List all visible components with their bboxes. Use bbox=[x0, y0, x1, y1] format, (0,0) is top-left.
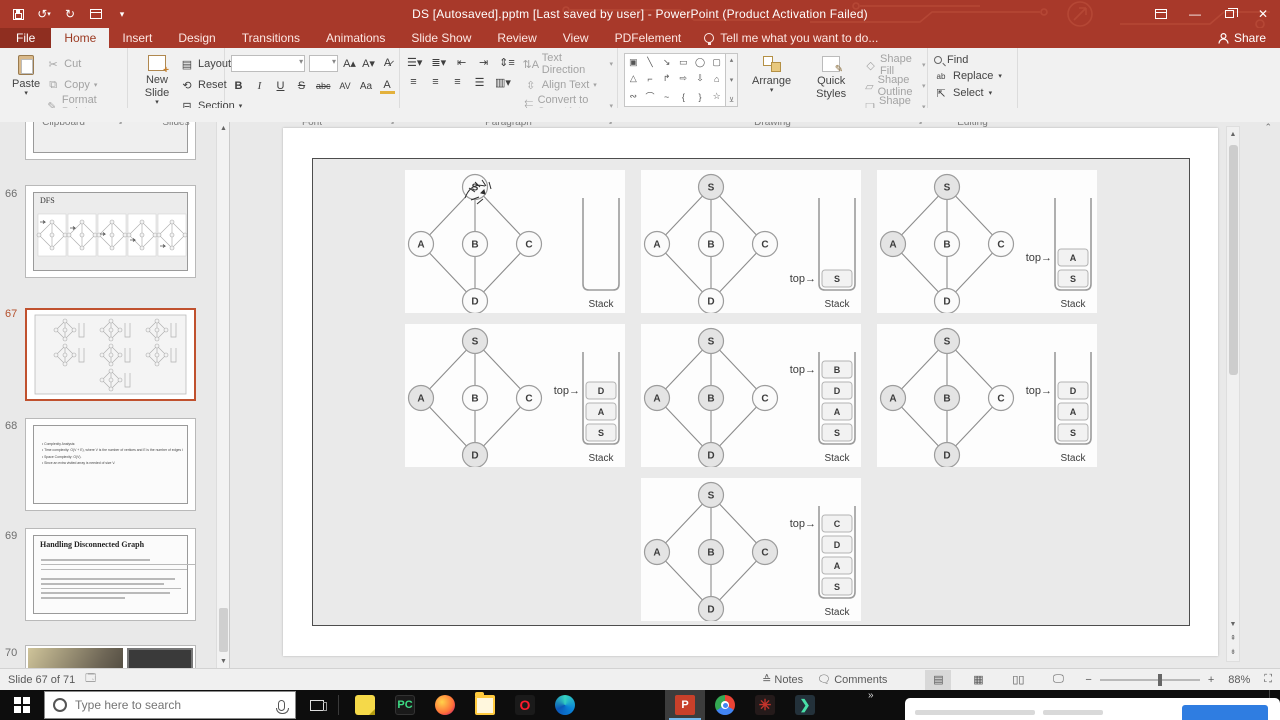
copy-label: Copy bbox=[64, 79, 90, 91]
slide-number: 70 bbox=[5, 647, 23, 659]
diagram-row: SABCDStackSABCDStop→StackSABCDAStop→Stac… bbox=[405, 170, 1097, 313]
columns-button[interactable]: ▥▾ bbox=[494, 74, 512, 90]
tab-pdfelement[interactable]: PDFelement bbox=[602, 28, 695, 48]
tab-insert[interactable]: Insert bbox=[109, 28, 165, 48]
svg-text:S: S bbox=[944, 337, 951, 348]
minimize-button[interactable]: — bbox=[1178, 0, 1212, 28]
restore-button[interactable] bbox=[1212, 0, 1246, 28]
svg-text:B: B bbox=[707, 394, 714, 405]
taskbar-app-powerpoint[interactable]: P bbox=[665, 690, 705, 720]
paste-button[interactable]: Paste ▾ bbox=[6, 52, 46, 116]
tab-view[interactable]: View bbox=[550, 28, 602, 48]
arrange-icon bbox=[763, 56, 781, 72]
select-button[interactable]: ⇱Select▾ bbox=[934, 86, 1013, 100]
svg-text:Stack: Stack bbox=[1060, 453, 1086, 464]
svg-text:S: S bbox=[598, 428, 604, 438]
tab-file[interactable]: File bbox=[0, 28, 51, 48]
svg-text:D: D bbox=[707, 451, 714, 462]
svg-text:top→: top→ bbox=[554, 385, 580, 397]
quick-styles-icon bbox=[822, 56, 840, 72]
svg-text:C: C bbox=[761, 548, 768, 559]
slide-number: 67 bbox=[5, 308, 23, 320]
taskbar-app-filmora[interactable]: ❯ bbox=[785, 690, 825, 720]
svg-text:S: S bbox=[1070, 428, 1076, 438]
svg-text:D: D bbox=[471, 451, 478, 462]
align-right-button[interactable]: ≡ bbox=[450, 74, 465, 90]
thumbnail-photo bbox=[28, 648, 123, 668]
decrease-indent-button[interactable]: ⇤ bbox=[454, 54, 469, 70]
zoom-in-button[interactable]: + bbox=[1208, 674, 1214, 686]
notification-popup[interactable] bbox=[905, 698, 1280, 720]
svg-text:A: A bbox=[653, 394, 660, 405]
slide-thumbnail-66[interactable]: DFS bbox=[25, 185, 196, 278]
font-size-combobox[interactable] bbox=[309, 55, 338, 72]
reading-view-button[interactable]: ▯▯ bbox=[1005, 670, 1031, 690]
svg-text:B: B bbox=[707, 548, 714, 559]
reset-label: Reset bbox=[198, 79, 227, 91]
copy-button[interactable]: ⧉Copy ▾ bbox=[46, 75, 123, 95]
dfs-step-card[interactable]: SABCDStack bbox=[405, 170, 625, 313]
svg-text:D: D bbox=[707, 297, 714, 308]
shape-glyph[interactable]: ◯ bbox=[695, 57, 705, 68]
tell-me-label: Tell me what you want to do... bbox=[720, 31, 878, 45]
svg-text:B: B bbox=[707, 240, 714, 251]
sidebar-scrollbar-thumb[interactable] bbox=[219, 608, 228, 652]
font-name-combobox[interactable] bbox=[231, 55, 305, 72]
editor-scroll-down-arrow[interactable]: ▼ bbox=[1227, 617, 1239, 631]
popup-text-placeholder bbox=[1043, 710, 1103, 715]
ribbon-tabs: FileHomeInsertDesignTransitionsAnimation… bbox=[0, 28, 694, 48]
taskbar-separator bbox=[338, 695, 339, 715]
editor-scrollbar-thumb[interactable] bbox=[1229, 145, 1238, 375]
next-slide-button[interactable]: ⇟ bbox=[1227, 645, 1239, 659]
task-view-icon bbox=[310, 700, 324, 711]
increase-indent-button[interactable]: ⇥ bbox=[476, 54, 491, 70]
shape-glyph[interactable]: ⇨ bbox=[680, 73, 688, 84]
svg-text:S: S bbox=[472, 337, 479, 348]
select-label: Select bbox=[953, 87, 984, 99]
cut-label: Cut bbox=[64, 58, 81, 70]
fit-to-window-button[interactable]: ⛶ bbox=[1264, 673, 1272, 686]
lightbulb-icon bbox=[704, 33, 714, 43]
svg-text:C: C bbox=[997, 240, 1004, 251]
shape-glyph[interactable]: ▢ bbox=[712, 57, 721, 68]
drawing-group: ▣╲↘▭◯▢△⌐↱⇨⇩⌂∾⌒~{}☆ ▴▾⊻ Arrange ▾ Quick S… bbox=[618, 48, 928, 114]
shape-glyph[interactable]: ↱ bbox=[663, 73, 671, 84]
svg-text:A: A bbox=[417, 394, 424, 405]
replace-label: Replace bbox=[953, 70, 993, 82]
tab-design[interactable]: Design bbox=[165, 28, 228, 48]
svg-text:D: D bbox=[471, 297, 478, 308]
slide-number: 69 bbox=[5, 530, 23, 542]
slides-group: New Slide ▾ ▤Layout▾ ⟲Reset ⊟Section▾ Sl… bbox=[128, 48, 225, 114]
firefox-icon bbox=[435, 695, 455, 715]
shape-glyph[interactable]: } bbox=[698, 92, 701, 102]
quick-styles-button[interactable]: Quick Styles bbox=[805, 53, 857, 103]
svg-text:Stack: Stack bbox=[824, 607, 850, 618]
slide-number-indicator[interactable]: Slide 67 of 71 bbox=[8, 674, 75, 686]
taskbar-app-pycharm[interactable]: PC bbox=[385, 690, 425, 720]
chrome-icon bbox=[715, 695, 735, 715]
numbering-button[interactable]: ≣▾ bbox=[430, 54, 447, 70]
svg-text:A: A bbox=[653, 240, 660, 251]
taskbar-app-firefox[interactable] bbox=[425, 690, 465, 720]
shape-glyph[interactable]: ~ bbox=[664, 92, 669, 102]
svg-text:B: B bbox=[834, 365, 841, 375]
desktop-toolbar-chevron[interactable]: » bbox=[868, 690, 874, 701]
svg-text:B: B bbox=[943, 240, 950, 251]
bullets-button[interactable]: ☰▾ bbox=[406, 54, 423, 70]
clipboard-group: Paste ▾ ✂Cut ⧉Copy ▾ ✎Format Painter Cli… bbox=[0, 48, 128, 114]
person-icon bbox=[1218, 33, 1229, 44]
powerpoint-window: ↺▾ ↻ ▾ DS [Autosaved].pptm [Last saved b… bbox=[0, 0, 1280, 720]
tab-transitions[interactable]: Transitions bbox=[229, 28, 313, 48]
collapse-ribbon-chevron[interactable]: ⌃ bbox=[1264, 122, 1272, 133]
svg-text:A: A bbox=[889, 394, 896, 405]
shape-fill-icon: ◇ bbox=[865, 58, 876, 72]
svg-text:D: D bbox=[943, 297, 950, 308]
slide-thumbnail-70[interactable] bbox=[25, 645, 196, 668]
tell-me-box[interactable]: Tell me what you want to do... bbox=[694, 28, 888, 48]
layout-icon: ▤ bbox=[180, 57, 194, 71]
main-area: ▲ ▼ 66DFS6768• Complexity Analysis:• Tim… bbox=[0, 122, 1280, 668]
shape-glyph[interactable]: ⇩ bbox=[696, 73, 704, 84]
shape-glyph[interactable]: { bbox=[682, 92, 685, 102]
strikethrough-button[interactable]: S bbox=[294, 78, 309, 94]
shape-glyph[interactable]: ▭ bbox=[679, 57, 688, 68]
tab-animations[interactable]: Animations bbox=[313, 28, 398, 48]
slide-number: 68 bbox=[5, 420, 23, 432]
zoom-knob[interactable] bbox=[1158, 674, 1162, 686]
svg-text:D: D bbox=[598, 386, 605, 396]
svg-text:D: D bbox=[834, 386, 841, 396]
shape-glyph[interactable]: ▣ bbox=[629, 57, 638, 68]
shapes-gallery[interactable]: ▣╲↘▭◯▢△⌐↱⇨⇩⌂∾⌒~{}☆ bbox=[624, 53, 726, 107]
close-button[interactable]: ✕ bbox=[1246, 0, 1280, 28]
svg-text:A: A bbox=[834, 561, 841, 571]
slide-thumbnail-69[interactable]: Handling Disconnected Graph bbox=[25, 528, 196, 621]
taskbar-app-red-star-app[interactable]: ✳ bbox=[745, 690, 785, 720]
font-group: A▴ A▾ A̷ B I U S abc AV Aa A Font ↘ bbox=[225, 48, 400, 114]
windows-logo-icon bbox=[14, 697, 29, 712]
find-label: Find bbox=[947, 54, 968, 66]
tab-review[interactable]: Review bbox=[484, 28, 549, 48]
window-controls: — ✕ bbox=[1144, 0, 1280, 28]
quick-styles-label: Quick Styles bbox=[811, 75, 851, 100]
svg-text:C: C bbox=[525, 394, 532, 405]
taskbar-app-edge[interactable] bbox=[545, 690, 585, 720]
shape-glyph[interactable]: ∾ bbox=[630, 91, 638, 102]
change-case-button[interactable]: Aa bbox=[359, 78, 374, 94]
dfs-step-card[interactable]: SABCDDAStop→Stack bbox=[405, 324, 625, 467]
italic-button[interactable]: I bbox=[252, 78, 267, 94]
slideshow-view-button[interactable]: 🖵 bbox=[1045, 670, 1071, 690]
copy-icon: ⧉ bbox=[46, 78, 60, 92]
character-spacing-button[interactable]: AV bbox=[338, 78, 353, 94]
dfs-diagram-grid: SABCDStackSABCDStop→StackSABCDAStop→Stac… bbox=[313, 159, 1189, 625]
svg-text:top→: top→ bbox=[1026, 252, 1052, 264]
start-button[interactable] bbox=[0, 690, 44, 720]
svg-text:top→: top→ bbox=[1026, 385, 1052, 397]
svg-text:top→: top→ bbox=[790, 518, 816, 530]
text-direction-icon: ⇅A bbox=[524, 57, 538, 71]
dfs-step-card[interactable]: SABCDStop→Stack bbox=[641, 170, 861, 313]
diagram-row: SABCDCDAStop→Stack bbox=[641, 478, 861, 621]
popup-action-button[interactable] bbox=[1182, 705, 1268, 720]
cortana-icon bbox=[53, 698, 67, 712]
task-view-button[interactable] bbox=[302, 690, 332, 720]
svg-text:A: A bbox=[834, 407, 841, 417]
shape-outline-icon: ▱ bbox=[865, 79, 873, 93]
slide-number: 66 bbox=[5, 188, 23, 200]
popup-text-placeholder bbox=[915, 710, 1035, 715]
ribbon-display-options-button[interactable] bbox=[1144, 0, 1178, 28]
taskbar-search[interactable] bbox=[44, 691, 296, 719]
svg-text:C: C bbox=[761, 394, 768, 405]
shrink-font-button[interactable]: A▾ bbox=[361, 55, 376, 71]
zoom-slider[interactable]: − + bbox=[1085, 674, 1214, 686]
sticky-notes-icon bbox=[355, 695, 375, 715]
dfs-step-card[interactable]: SABCDAStop→Stack bbox=[877, 170, 1097, 313]
notes-toggle[interactable]: ≙ Notes bbox=[762, 673, 803, 686]
save-icon[interactable] bbox=[10, 6, 26, 22]
comments-toggle[interactable]: 🗨 Comments bbox=[817, 673, 887, 686]
svg-text:B: B bbox=[471, 394, 478, 405]
svg-text:S: S bbox=[708, 491, 715, 502]
powerpoint-icon: P bbox=[675, 695, 695, 715]
align-center-button[interactable]: ≡ bbox=[428, 74, 443, 90]
notes-label: Notes bbox=[774, 674, 803, 686]
ribbon-tab-row: FileHomeInsertDesignTransitionsAnimation… bbox=[0, 28, 1280, 48]
clear-formatting-button[interactable]: A̷ bbox=[380, 55, 395, 71]
pycharm-icon: PC bbox=[395, 695, 415, 715]
svg-text:S: S bbox=[834, 274, 840, 284]
svg-text:D: D bbox=[943, 451, 950, 462]
svg-text:Stack: Stack bbox=[824, 299, 850, 310]
svg-text:C: C bbox=[525, 240, 532, 251]
shape-glyph[interactable]: ↘ bbox=[663, 57, 671, 68]
paste-icon bbox=[18, 55, 34, 75]
grow-font-button[interactable]: A▴ bbox=[342, 55, 357, 71]
redo-icon[interactable]: ↻ bbox=[62, 6, 78, 22]
replace-icon: ab bbox=[934, 69, 948, 83]
taskbar-app-chrome[interactable] bbox=[705, 690, 745, 720]
thumbnail-dark-box bbox=[127, 648, 193, 668]
svg-text:C: C bbox=[834, 519, 841, 529]
editor-scroll-up-arrow[interactable]: ▲ bbox=[1227, 127, 1239, 141]
edge-icon bbox=[555, 695, 575, 715]
taskbar-app-sticky-notes[interactable] bbox=[345, 690, 385, 720]
svg-text:Stack: Stack bbox=[588, 453, 614, 464]
new-slide-button[interactable]: New Slide ▾ bbox=[134, 52, 180, 116]
file-explorer-icon bbox=[475, 695, 495, 715]
new-slide-label: New Slide bbox=[140, 74, 174, 99]
status-bar: Slide 67 of 71 🗔 ≙ Notes 🗨 Comments ▤ ▦ … bbox=[0, 668, 1280, 690]
shape-fill-button[interactable]: ◇Shape Fill▾ bbox=[865, 55, 925, 75]
align-text-label: Align Text bbox=[542, 79, 590, 91]
scroll-down-arrow[interactable]: ▼ bbox=[217, 655, 230, 668]
svg-text:top→: top→ bbox=[790, 273, 816, 285]
customize-quick-access-icon[interactable]: ▾ bbox=[114, 6, 130, 22]
title-bar: ↺▾ ↻ ▾ DS [Autosaved].pptm [Last saved b… bbox=[0, 0, 1280, 28]
arrange-button[interactable]: Arrange ▾ bbox=[746, 53, 797, 97]
shape-glyph[interactable]: ☆ bbox=[713, 91, 721, 102]
svg-text:S: S bbox=[834, 582, 840, 592]
tab-home[interactable]: Home bbox=[51, 28, 109, 48]
svg-text:A: A bbox=[1070, 407, 1077, 417]
slideshow-icon[interactable] bbox=[88, 6, 104, 22]
search-icon bbox=[934, 56, 942, 64]
shape-glyph[interactable]: △ bbox=[630, 73, 637, 84]
svg-text:D: D bbox=[834, 540, 841, 550]
sidebar-scrollbar[interactable]: ▲ ▼ bbox=[216, 122, 229, 668]
shadow-button[interactable]: abc bbox=[315, 78, 332, 94]
svg-text:C: C bbox=[761, 240, 768, 251]
taskbar-app-opera[interactable]: O bbox=[505, 690, 545, 720]
microphone-icon[interactable] bbox=[278, 700, 285, 711]
svg-text:top→: top→ bbox=[790, 364, 816, 376]
text-direction-button[interactable]: ⇅AText Direction▾ bbox=[524, 54, 613, 74]
slide-thumbnail-68[interactable]: • Complexity Analysis:• Time complexity:… bbox=[25, 418, 196, 511]
editor-scrollbar[interactable]: ▲ ▼ ⇞ ⇟ bbox=[1226, 126, 1240, 662]
svg-text:B: B bbox=[471, 240, 478, 251]
reset-icon: ⟲ bbox=[180, 78, 194, 92]
align-left-button[interactable]: ≡ bbox=[406, 74, 421, 90]
svg-text:D: D bbox=[1070, 386, 1077, 396]
svg-text:A: A bbox=[889, 240, 896, 251]
slide-sorter-view-button[interactable]: ▦ bbox=[965, 670, 991, 690]
line-spacing-button[interactable]: ⇕≡ bbox=[498, 54, 516, 70]
cut-icon: ✂ bbox=[46, 57, 60, 71]
quick-access-toolbar: ↺▾ ↻ ▾ bbox=[10, 0, 130, 28]
shape-outline-button[interactable]: ▱Shape Outline▾ bbox=[865, 76, 925, 96]
shape-glyph[interactable]: ⌂ bbox=[714, 74, 719, 84]
svg-text:S: S bbox=[834, 428, 840, 438]
svg-text:S: S bbox=[1070, 274, 1076, 284]
tab-slide-show[interactable]: Slide Show bbox=[398, 28, 484, 48]
font-color-button[interactable]: A bbox=[380, 78, 395, 94]
find-button[interactable]: Find bbox=[934, 54, 1013, 66]
slide-editor-area: SABCDStackSABCDStop→StackSABCDAStop→Stac… bbox=[230, 122, 1280, 668]
svg-text:A: A bbox=[598, 407, 605, 417]
search-input[interactable] bbox=[75, 698, 270, 712]
text-direction-label: Text Direction bbox=[542, 52, 606, 76]
diagram-row: SABCDDAStop→StackSABCDBDAStop→StackSABCD… bbox=[405, 324, 1097, 467]
language-proofing-icon[interactable]: 🗔 bbox=[85, 671, 96, 688]
svg-text:Stack: Stack bbox=[588, 299, 614, 310]
svg-text:A: A bbox=[653, 548, 660, 559]
previous-slide-button[interactable]: ⇞ bbox=[1227, 631, 1239, 645]
share-button[interactable]: Share bbox=[1218, 28, 1280, 48]
editing-group: Find abReplace▾ ⇱Select▾ Editing bbox=[928, 48, 1018, 114]
new-slide-icon bbox=[148, 55, 166, 71]
slide-canvas[interactable]: SABCDStackSABCDStop→StackSABCDAStop→Stac… bbox=[283, 128, 1218, 656]
zoom-percent[interactable]: 88% bbox=[1228, 674, 1250, 686]
svg-text:Stack: Stack bbox=[1060, 299, 1086, 310]
dfs-step-card[interactable]: SABCDBDAStop→Stack bbox=[641, 324, 861, 467]
select-cursor-icon: ⇱ bbox=[934, 86, 948, 100]
slide-thumbnail-panel: ▲ ▼ 66DFS6768• Complexity Analysis:• Tim… bbox=[0, 122, 230, 668]
window-title: DS [Autosaved].pptm [Last saved by user]… bbox=[0, 0, 1280, 28]
share-label: Share bbox=[1234, 31, 1266, 45]
slide-content-box[interactable]: SABCDStackSABCDStop→StackSABCDAStop→Stac… bbox=[312, 158, 1190, 626]
svg-text:D: D bbox=[707, 605, 714, 616]
paragraph-group: ☰▾ ≣▾ ⇤ ⇥ ⇕≡ ≡ ≡ ≡ ☰ ▥▾ ⇅AText bbox=[400, 48, 618, 114]
normal-view-button[interactable]: ▤ bbox=[925, 670, 951, 690]
svg-text:B: B bbox=[943, 394, 950, 405]
cut-button[interactable]: ✂Cut bbox=[46, 54, 123, 74]
slide-thumbnail-67[interactable] bbox=[25, 308, 196, 401]
filmora-icon: ❯ bbox=[795, 695, 815, 715]
underline-button[interactable]: U bbox=[273, 78, 288, 94]
svg-text:A: A bbox=[1070, 253, 1077, 263]
dfs-step-card[interactable]: SABCDDAStop→Stack bbox=[877, 324, 1097, 467]
taskbar-apps: PCOP✳❯ bbox=[345, 690, 825, 720]
shape-glyph[interactable]: ⌐ bbox=[647, 74, 652, 84]
align-text-button[interactable]: ⇳Align Text▾ bbox=[524, 75, 613, 95]
dfs-step-card[interactable]: SABCDCDAStop→Stack bbox=[641, 478, 861, 621]
svg-text:C: C bbox=[997, 394, 1004, 405]
svg-text:Stack: Stack bbox=[824, 453, 850, 464]
svg-text:S: S bbox=[708, 337, 715, 348]
comments-label: Comments bbox=[834, 674, 887, 686]
svg-text:S: S bbox=[944, 183, 951, 194]
svg-text:A: A bbox=[417, 240, 424, 251]
undo-icon[interactable]: ↺▾ bbox=[36, 6, 52, 22]
align-text-icon: ⇳ bbox=[524, 78, 538, 92]
bold-button[interactable]: B bbox=[231, 78, 246, 94]
replace-button[interactable]: abReplace▾ bbox=[934, 69, 1013, 83]
justify-button[interactable]: ☰ bbox=[472, 74, 487, 90]
zoom-out-button[interactable]: − bbox=[1085, 674, 1091, 686]
svg-text:S: S bbox=[708, 183, 715, 194]
shape-glyph[interactable]: ╲ bbox=[647, 57, 652, 68]
taskbar-app-file-explorer[interactable] bbox=[465, 690, 505, 720]
opera-icon: O bbox=[515, 695, 535, 715]
zoom-track[interactable] bbox=[1100, 679, 1200, 681]
red-star-app-icon: ✳ bbox=[755, 695, 775, 715]
shape-glyph[interactable]: ⌒ bbox=[645, 90, 654, 103]
shapes-gallery-scrollbar[interactable]: ▴▾⊻ bbox=[726, 53, 738, 107]
